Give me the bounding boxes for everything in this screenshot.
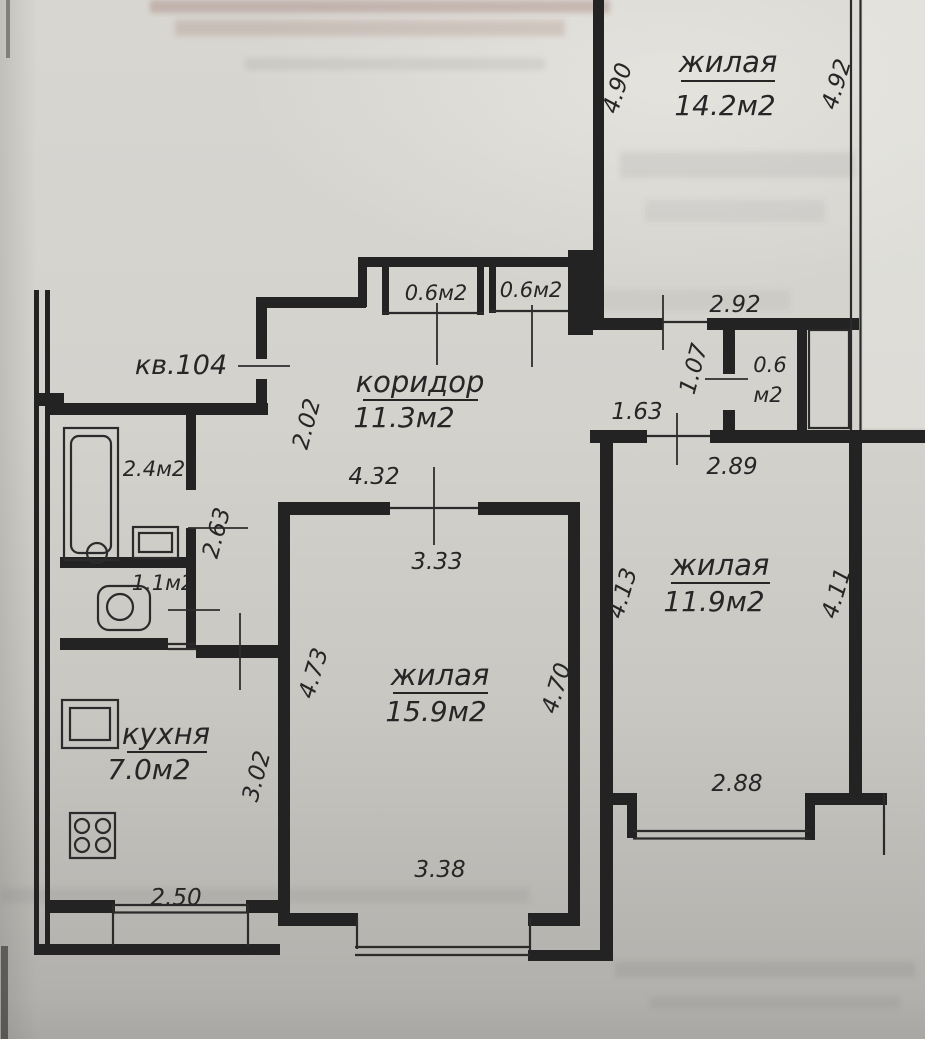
wall	[186, 403, 196, 490]
wall	[37, 944, 280, 955]
washing-machine-inner	[139, 533, 172, 552]
dimension-labels: 4.90 4.92 2.92 1.07 1.63 2.89 2.02 2.63 …	[150, 56, 856, 911]
dim-corridor-length: 4.32	[348, 464, 399, 490]
room-area-toilet: 1.1м2	[132, 571, 195, 595]
wall	[723, 330, 735, 374]
dim-door-width: 1.63	[611, 399, 662, 425]
dim-kitchen-width: 2.50	[150, 885, 201, 911]
stove-burner	[75, 838, 89, 852]
wall	[805, 798, 815, 840]
floor-plan-drawing: жилая 14.2м2 0.6м2 0.6м2 кв.104 коридор …	[0, 0, 925, 1039]
scan-artifacts	[0, 0, 925, 1039]
dim-center-room-bottom: 3.38	[414, 857, 465, 883]
scanned-floor-plan-page: жилая 14.2м2 0.6м2 0.6м2 кв.104 коридор …	[0, 0, 925, 1039]
room-area-living-right: 11.9м2	[663, 585, 764, 618]
stove-burner	[96, 819, 110, 833]
wall	[48, 403, 268, 415]
wall	[805, 793, 887, 805]
wall	[48, 900, 115, 913]
dim-center-room-top: 3.33	[411, 549, 462, 575]
room-area-balcony-closet-1: 0.6м2	[405, 281, 468, 305]
room-area-living-top: 14.2м2	[674, 89, 775, 122]
wall	[849, 430, 862, 803]
wall	[278, 502, 290, 917]
dim-passage-height: 1.07	[675, 341, 713, 398]
wall	[707, 318, 859, 330]
room-area-bathroom: 2.4м2	[123, 457, 186, 481]
room-area-living-center: 15.9м2	[385, 695, 486, 728]
room-label-kitchen: кухня	[122, 717, 210, 751]
room-label-living-right: жилая	[670, 548, 770, 582]
room-area-small-closet-1: 0.6	[753, 353, 786, 377]
wall	[34, 290, 39, 955]
wall	[600, 430, 613, 960]
dim-right-room-top: 2.89	[706, 454, 757, 480]
wall	[60, 638, 168, 650]
wall	[710, 430, 925, 443]
dim-center-room-left: 4.73	[294, 645, 334, 702]
dim-entry-width: 2.02	[288, 396, 326, 452]
wall	[593, 0, 604, 330]
windows-and-openings	[113, 0, 884, 955]
room-area-corridor: 11.3м2	[353, 401, 454, 434]
wall	[568, 502, 580, 917]
dim-top-room-width: 2.92	[709, 292, 760, 318]
room-label-living-top: жилая	[678, 45, 778, 79]
wall	[246, 900, 290, 913]
wall	[256, 297, 267, 359]
dimension-ticks	[168, 295, 748, 690]
wall	[593, 318, 663, 330]
room-label-living-center: жилая	[390, 658, 490, 692]
wall	[723, 410, 735, 432]
wall	[568, 250, 593, 335]
vent-shaft	[809, 330, 849, 428]
wall	[478, 502, 580, 515]
stove-burner	[75, 819, 89, 833]
stove	[70, 813, 115, 858]
wall	[382, 262, 389, 315]
wall	[477, 262, 484, 315]
room-area-kitchen: 7.0м2	[107, 753, 190, 786]
dim-top-room-left: 4.90	[598, 60, 638, 117]
wall	[39, 393, 64, 406]
kitchen-counter-inner	[70, 708, 110, 740]
toilet-bowl	[107, 594, 133, 620]
room-area-small-closet-2: м2	[753, 383, 782, 407]
room-label-corridor: коридор	[356, 365, 485, 399]
room-area-balcony-closet-2: 0.6м2	[500, 278, 563, 302]
wall	[196, 645, 278, 658]
wall	[278, 502, 390, 515]
stove-burner	[96, 838, 110, 852]
wall	[358, 257, 572, 267]
wall	[528, 913, 580, 926]
dim-right-room-bottom: 2.88	[711, 771, 762, 797]
bathtub-inner	[71, 436, 111, 553]
wall	[278, 913, 358, 926]
dim-kitchen-height: 3.02	[238, 748, 276, 804]
dim-hall-width: 2.63	[198, 505, 236, 561]
apartment-number: кв.104	[135, 350, 227, 381]
wall	[528, 950, 613, 961]
wall	[590, 430, 647, 443]
wall	[45, 290, 50, 950]
wall	[797, 318, 807, 432]
wall	[489, 262, 496, 313]
wall	[266, 297, 366, 308]
